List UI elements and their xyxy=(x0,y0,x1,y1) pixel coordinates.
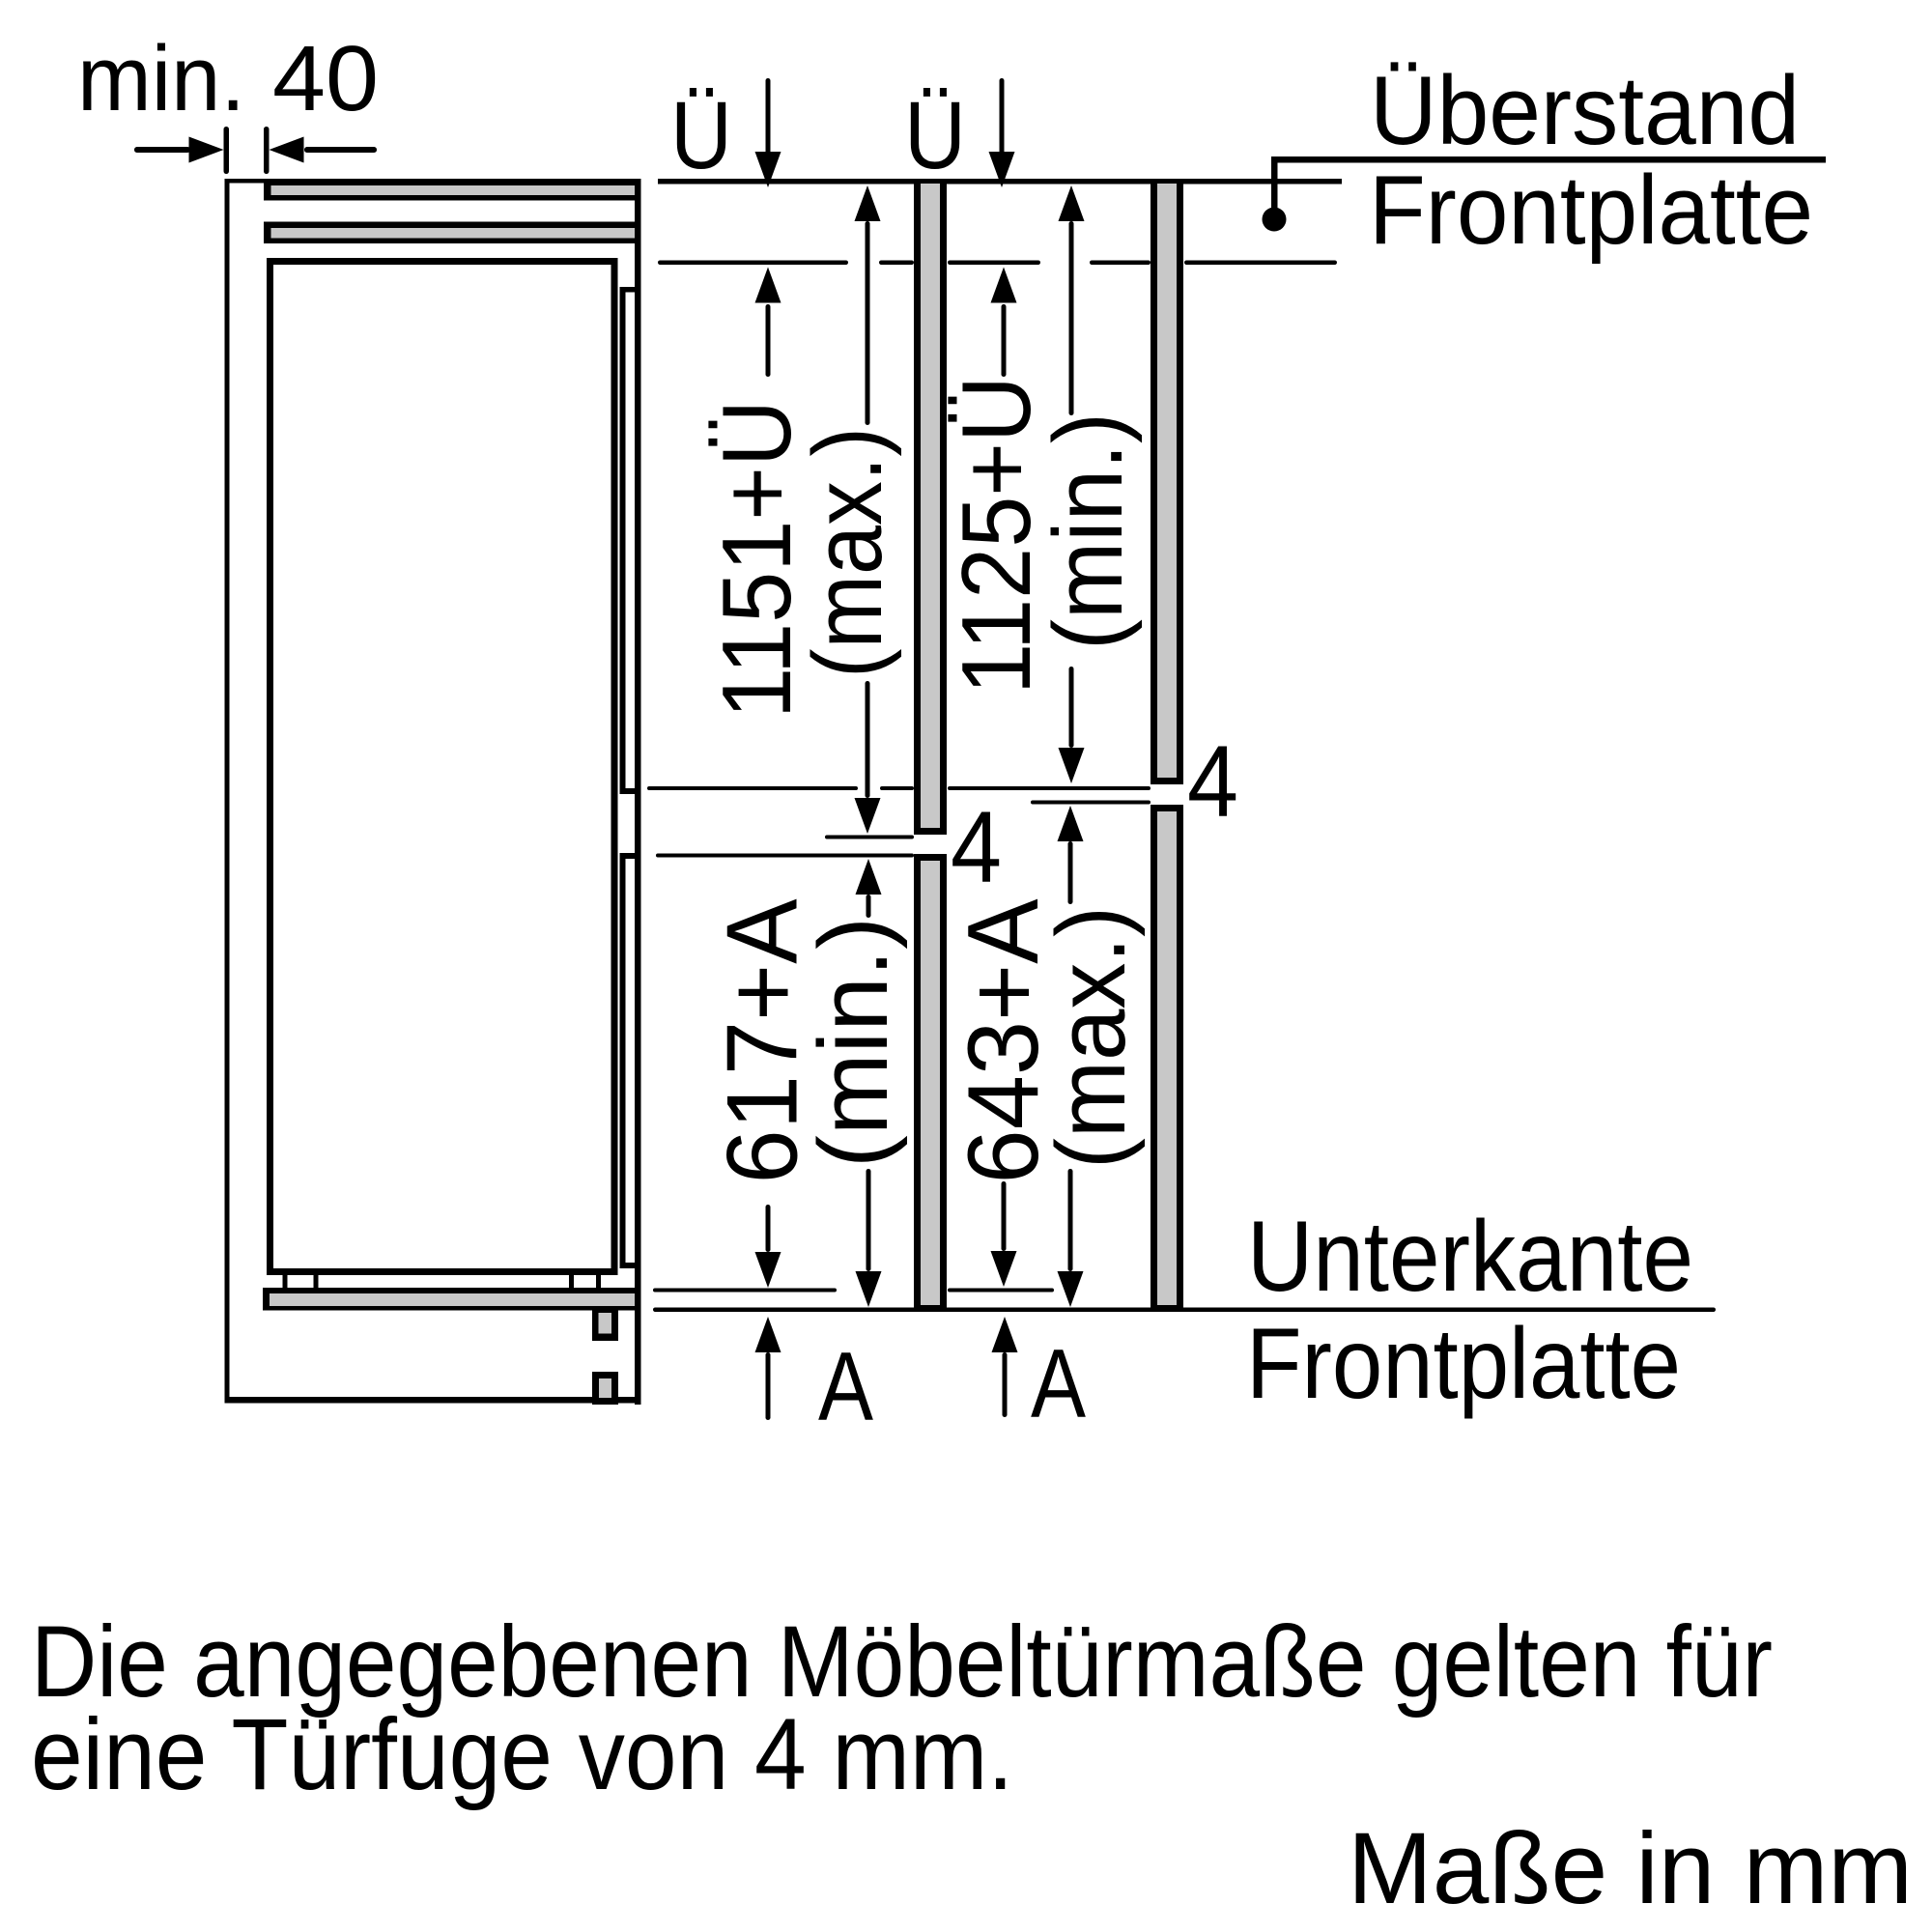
svg-text:(min.): (min.) xyxy=(1035,412,1143,650)
svg-text:Frontplatte: Frontplatte xyxy=(1246,1308,1681,1420)
svg-text:4: 4 xyxy=(1187,725,1238,838)
svg-text:Unterkante: Unterkante xyxy=(1247,1201,1693,1313)
svg-text:(max.): (max.) xyxy=(794,427,902,678)
svg-text:Maße in mm: Maße in mm xyxy=(1348,1812,1913,1925)
svg-text:Ü: Ü xyxy=(670,81,732,188)
svg-text:Frontplatte: Frontplatte xyxy=(1369,156,1813,265)
svg-text:Ü: Ü xyxy=(904,81,966,188)
svg-text:40: 40 xyxy=(272,27,379,130)
svg-text:(max.): (max.) xyxy=(1037,906,1146,1169)
svg-text:4: 4 xyxy=(951,791,1002,904)
svg-text:(min.): (min.) xyxy=(800,917,908,1168)
svg-text:min.: min. xyxy=(77,27,245,130)
svg-text:A: A xyxy=(1031,1330,1087,1438)
svg-text:A: A xyxy=(818,1333,874,1441)
svg-text:Überstand: Überstand xyxy=(1370,57,1800,165)
svg-text:eine Türfuge von 4 mm.: eine Türfuge von 4 mm. xyxy=(31,1698,1013,1811)
